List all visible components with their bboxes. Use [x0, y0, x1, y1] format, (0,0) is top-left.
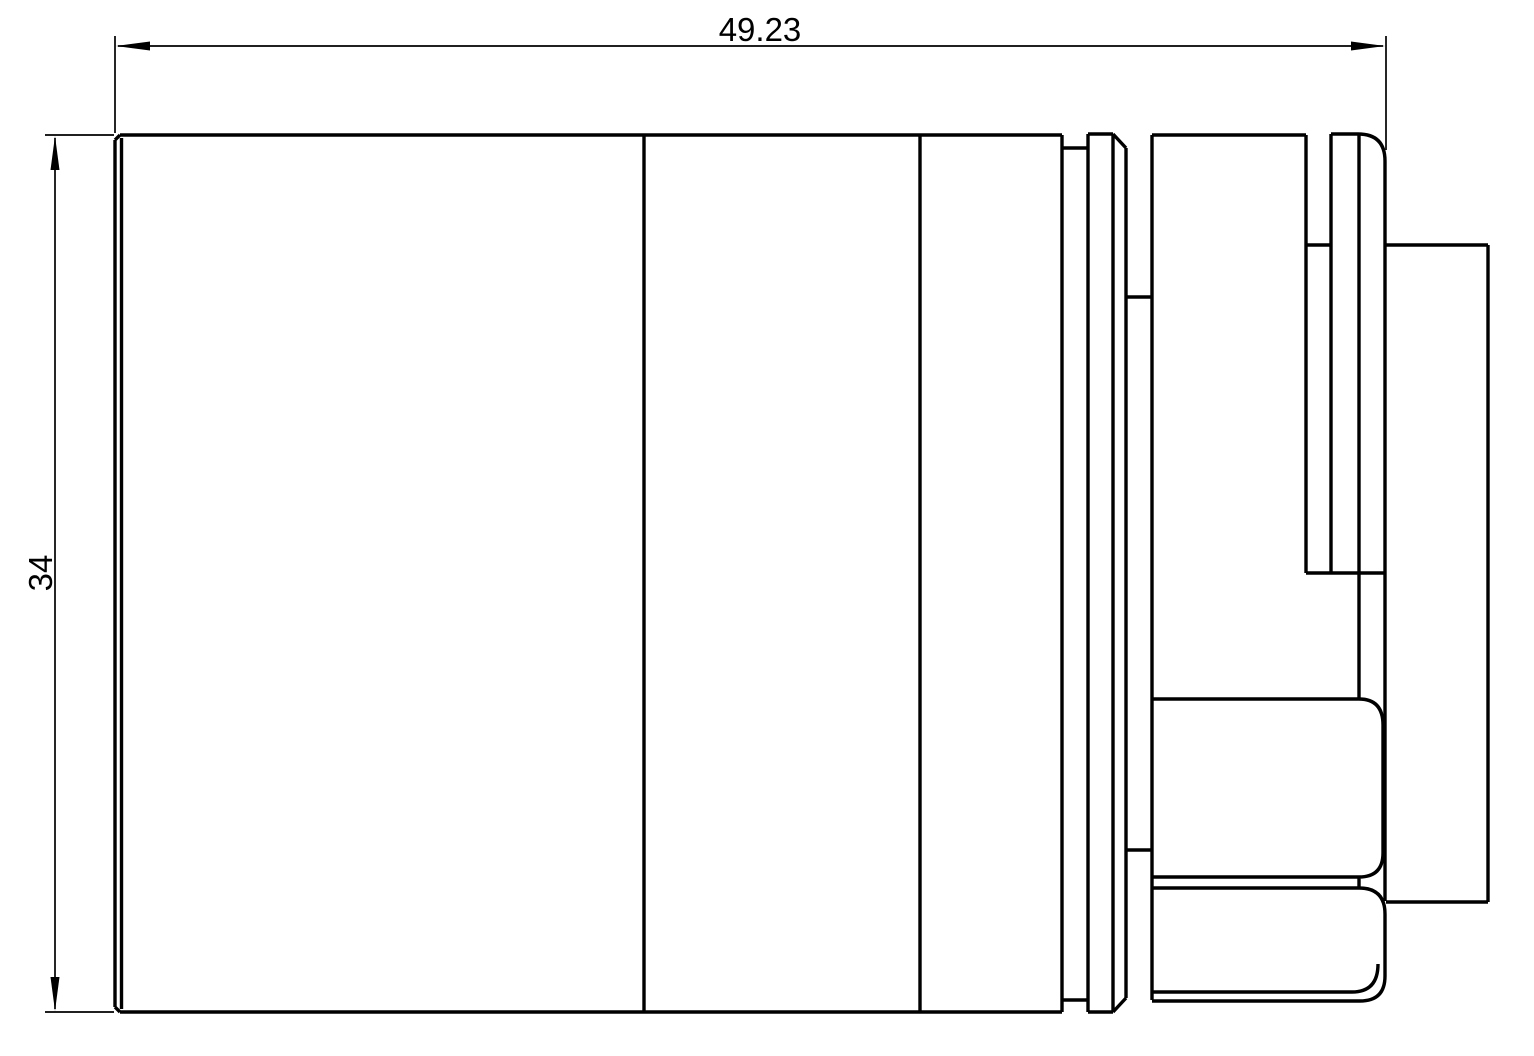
dimension-width-arrow-right — [1351, 42, 1385, 51]
dimension-height-arrow-bottom — [51, 977, 60, 1011]
drawing-sheet: 49.23 34 — [0, 0, 1534, 1056]
dimension-height: 34 — [22, 135, 114, 1012]
lower-knob — [1152, 888, 1385, 1001]
groove — [1062, 148, 1088, 1000]
drawing-canvas: 49.23 34 — [0, 0, 1534, 1056]
dimension-height-arrow-top — [51, 136, 60, 170]
dimension-width-extension-lines — [115, 36, 1386, 150]
lock-ring — [1088, 134, 1126, 1012]
rear-housing — [1152, 134, 1385, 1000]
upper-knob — [1152, 699, 1383, 888]
dimension-height-label: 34 — [22, 555, 59, 592]
dimension-width: 49.23 — [115, 11, 1386, 150]
mount-thread-barrel — [1386, 245, 1488, 902]
neck — [1126, 297, 1152, 850]
dimension-width-label: 49.23 — [719, 11, 802, 48]
dimension-width-arrow-left — [116, 42, 150, 51]
lens-body — [115, 134, 1488, 1012]
top-knob — [1331, 134, 1385, 901]
